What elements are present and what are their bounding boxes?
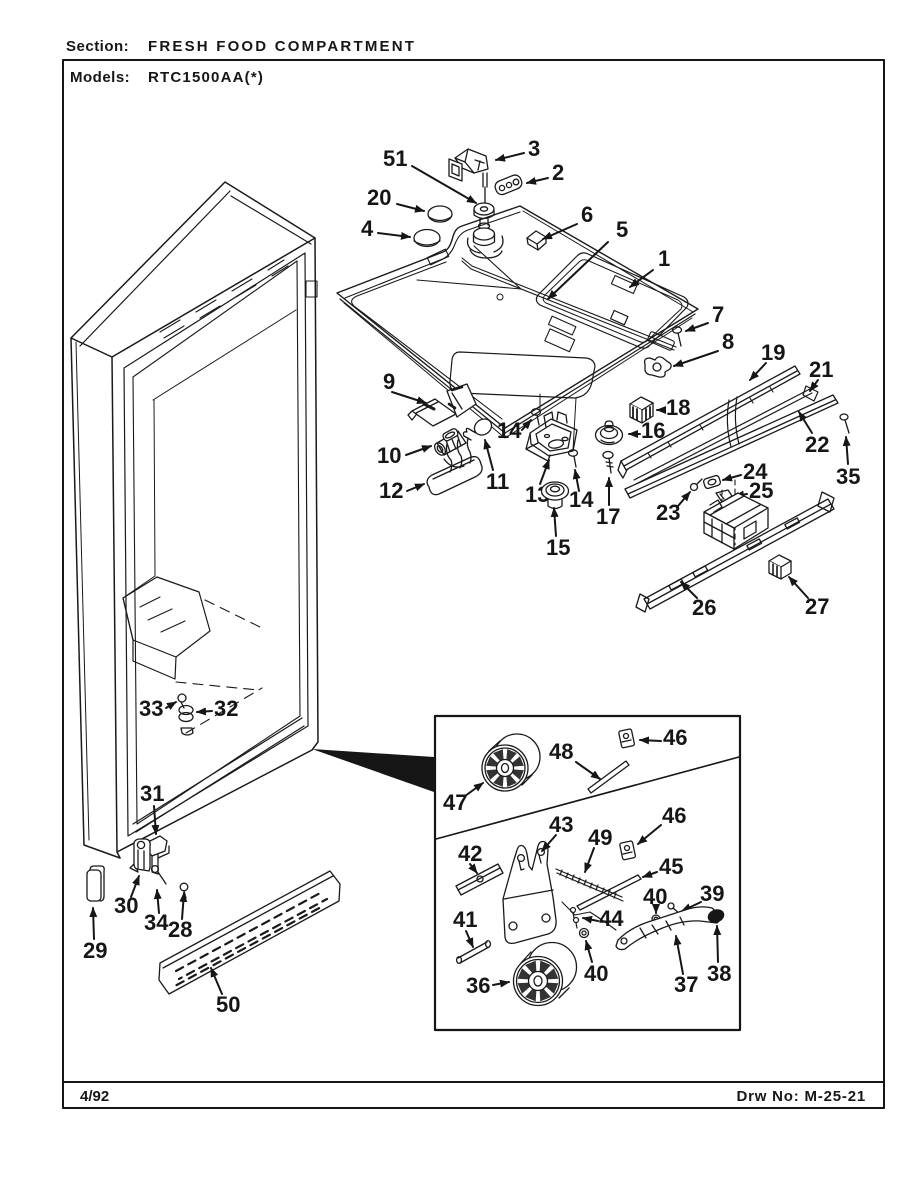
svg-text:FRESH FOOD COMPARTMENT: FRESH FOOD COMPARTMENT [148, 38, 416, 55]
svg-text:17: 17 [596, 504, 620, 529]
svg-text:3: 3 [528, 136, 540, 161]
svg-text:31: 31 [140, 781, 164, 806]
svg-text:46: 46 [663, 725, 687, 750]
svg-text:12: 12 [379, 478, 403, 503]
svg-text:7: 7 [712, 302, 724, 327]
svg-text:40: 40 [584, 961, 608, 986]
svg-text:50: 50 [216, 992, 240, 1017]
svg-text:11: 11 [486, 469, 509, 494]
svg-text:22: 22 [805, 432, 829, 457]
svg-text:40: 40 [643, 884, 667, 909]
svg-text:32: 32 [214, 696, 238, 721]
svg-text:42: 42 [458, 841, 482, 866]
svg-text:Models:: Models: [70, 69, 130, 86]
svg-text:47: 47 [443, 790, 467, 815]
svg-text:9: 9 [383, 369, 395, 394]
svg-text:28: 28 [168, 917, 192, 942]
svg-text:5: 5 [616, 217, 628, 242]
svg-text:36: 36 [466, 973, 490, 998]
svg-text:35: 35 [836, 464, 860, 489]
svg-text:25: 25 [749, 478, 773, 503]
svg-text:14: 14 [569, 487, 594, 512]
svg-text:23: 23 [656, 500, 680, 525]
svg-text:26: 26 [692, 595, 716, 620]
svg-text:39: 39 [700, 881, 724, 906]
svg-text:Section:: Section: [66, 38, 129, 55]
svg-text:29: 29 [83, 938, 107, 963]
svg-text:4: 4 [361, 216, 374, 241]
svg-text:6: 6 [581, 202, 593, 227]
svg-text:33: 33 [139, 696, 163, 721]
svg-text:Drw No: M-25-21: Drw No: M-25-21 [736, 1088, 866, 1105]
svg-text:14: 14 [497, 418, 522, 443]
svg-text:15: 15 [546, 535, 570, 560]
svg-text:19: 19 [761, 340, 785, 365]
svg-text:34: 34 [144, 910, 169, 935]
svg-text:43: 43 [549, 812, 573, 837]
svg-text:10: 10 [377, 443, 401, 468]
svg-text:37: 37 [674, 972, 698, 997]
svg-text:20: 20 [367, 185, 391, 210]
svg-text:8: 8 [722, 329, 734, 354]
svg-text:46: 46 [662, 803, 686, 828]
svg-text:2: 2 [552, 160, 564, 185]
svg-text:21: 21 [809, 357, 833, 382]
svg-text:4/92: 4/92 [80, 1088, 109, 1105]
svg-text:18: 18 [666, 395, 690, 420]
svg-text:45: 45 [659, 854, 683, 879]
svg-text:41: 41 [453, 907, 477, 932]
svg-text:38: 38 [707, 961, 731, 986]
svg-text:RTC1500AA(*): RTC1500AA(*) [148, 69, 264, 86]
svg-text:51: 51 [383, 146, 407, 171]
svg-text:49: 49 [588, 825, 612, 850]
svg-text:48: 48 [549, 739, 573, 764]
svg-text:1: 1 [658, 246, 670, 271]
svg-text:30: 30 [114, 893, 138, 918]
